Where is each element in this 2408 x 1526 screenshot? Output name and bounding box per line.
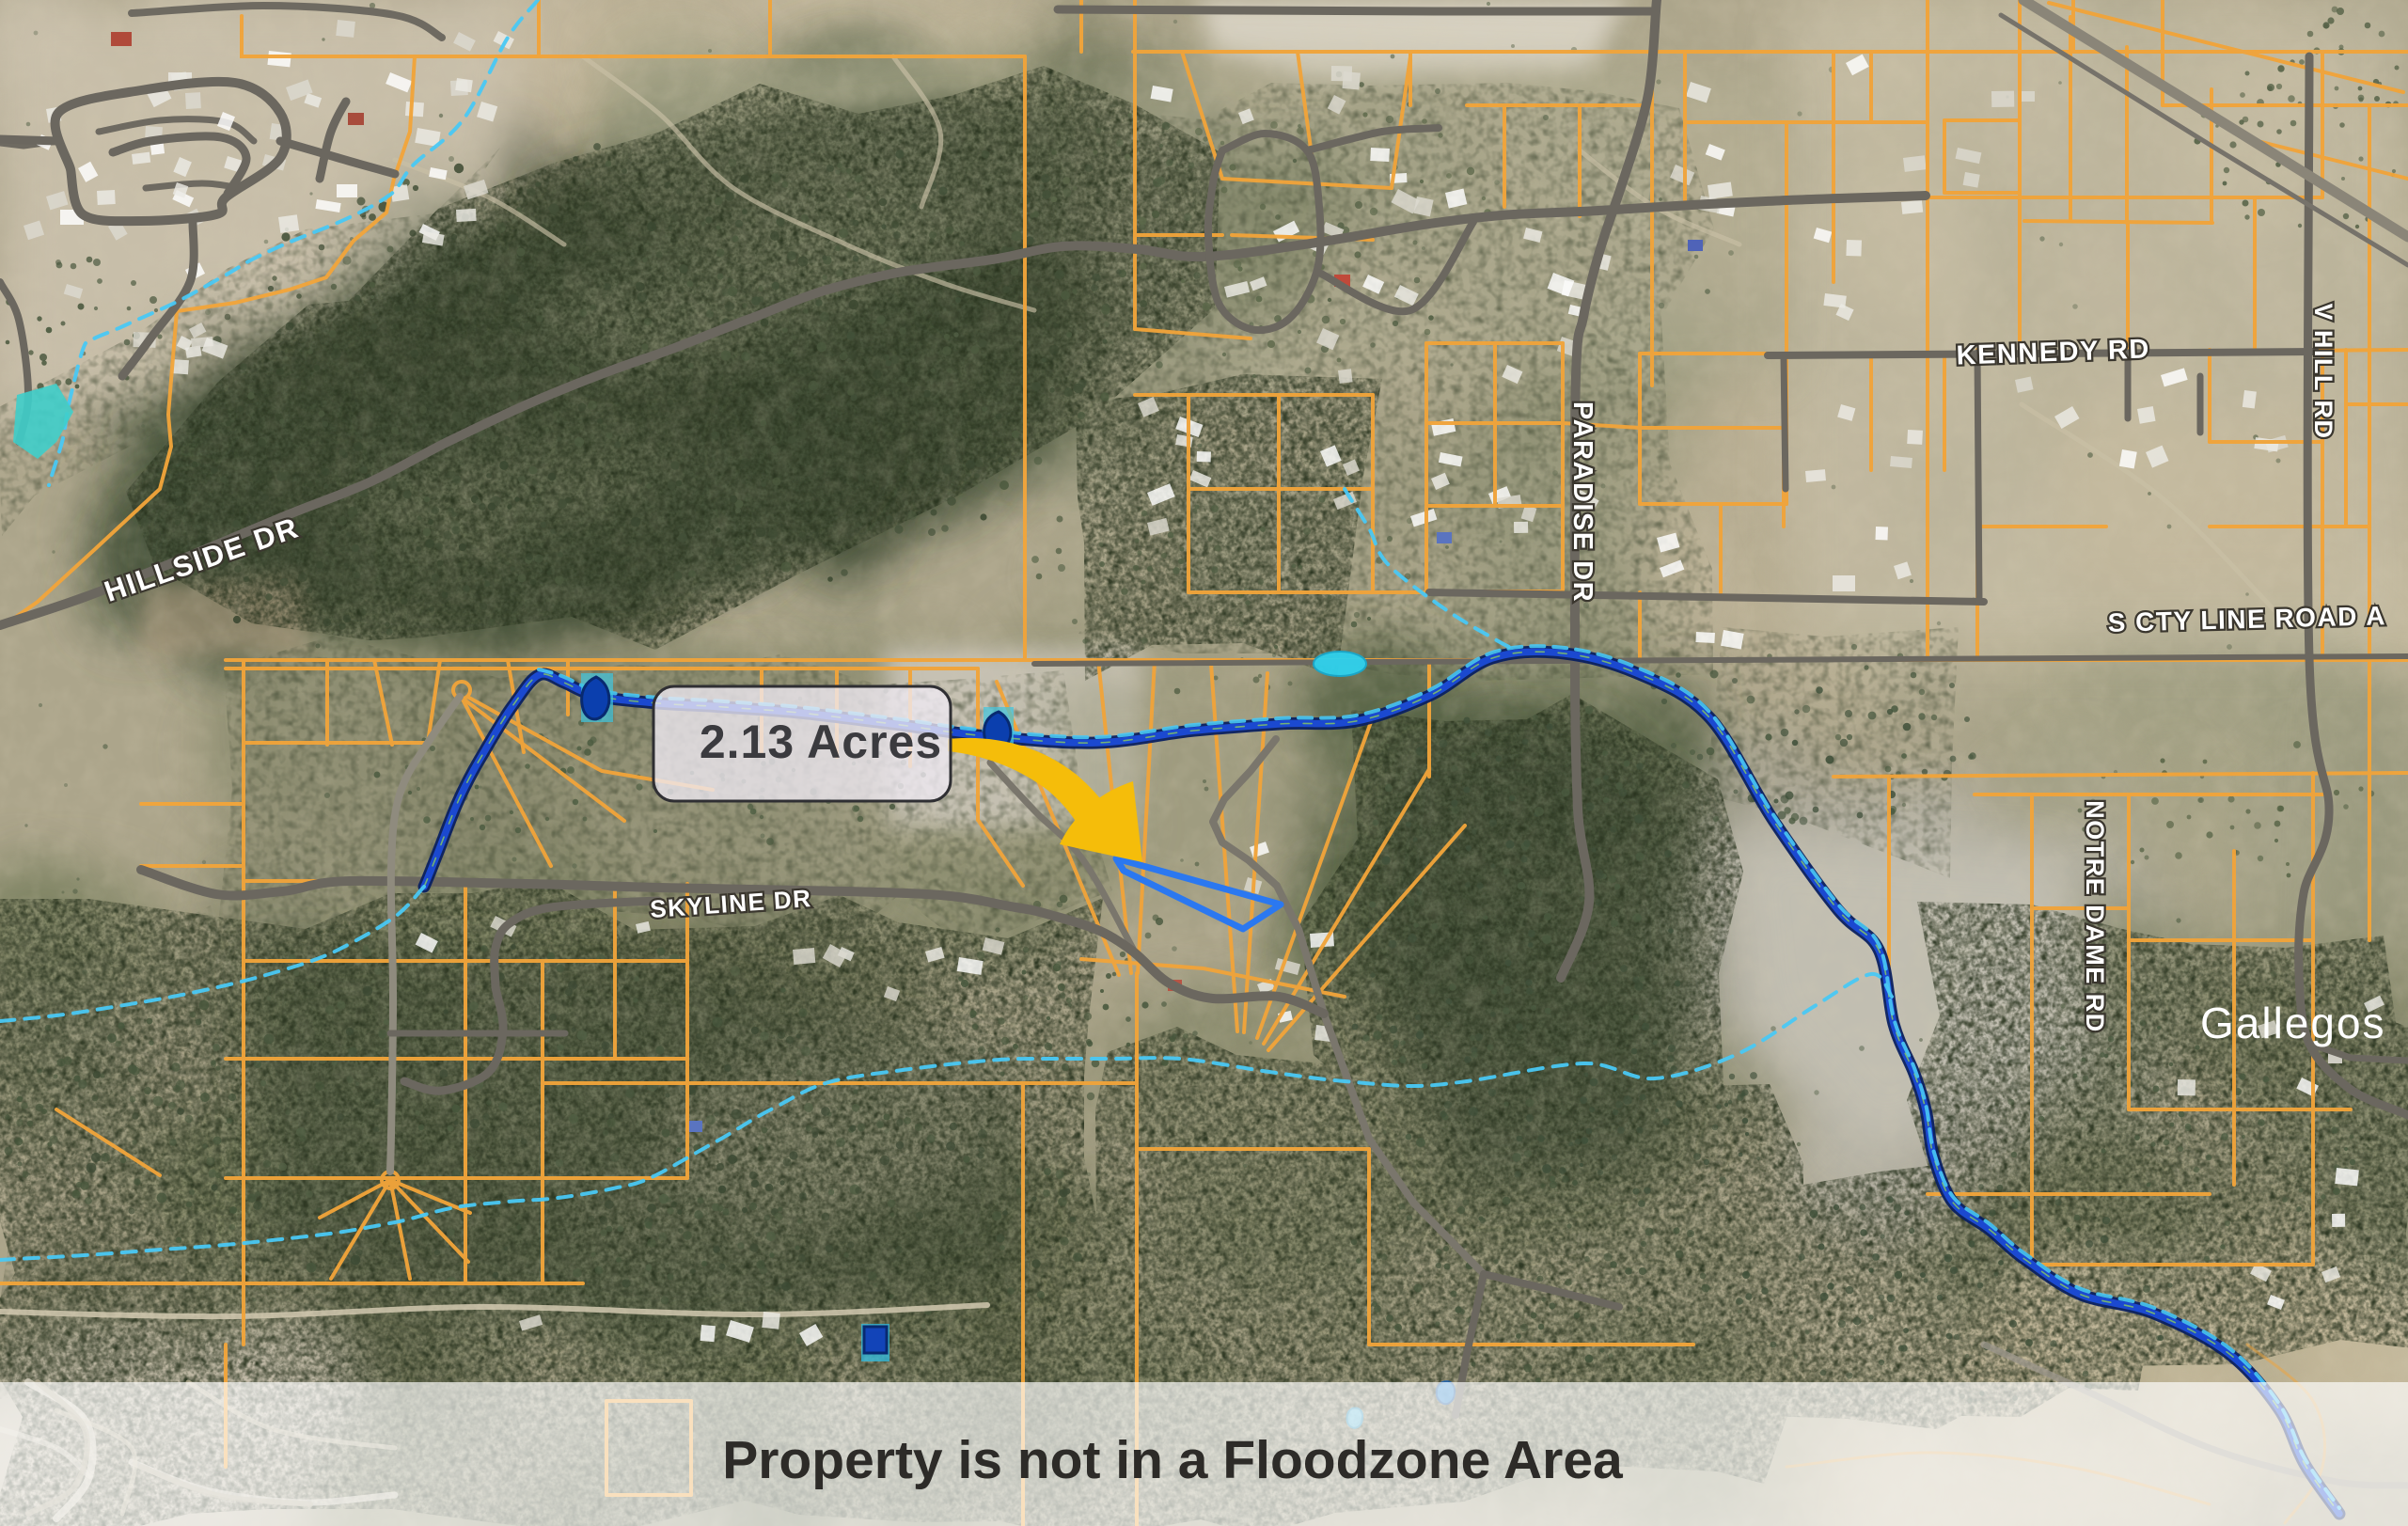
svg-text:Gallegos: Gallegos [2200, 999, 2386, 1047]
svg-text:PARADISE DR: PARADISE DR [1567, 401, 1597, 603]
svg-text:Property is not in a Floodzone: Property is not in a Floodzone Area [722, 1430, 1624, 1490]
svg-text:V HILL RD: V HILL RD [2309, 303, 2337, 439]
svg-text:NOTRE DAME RD: NOTRE DAME RD [2081, 800, 2109, 1033]
svg-text:2.13 Acres: 2.13 Acres [700, 716, 942, 768]
